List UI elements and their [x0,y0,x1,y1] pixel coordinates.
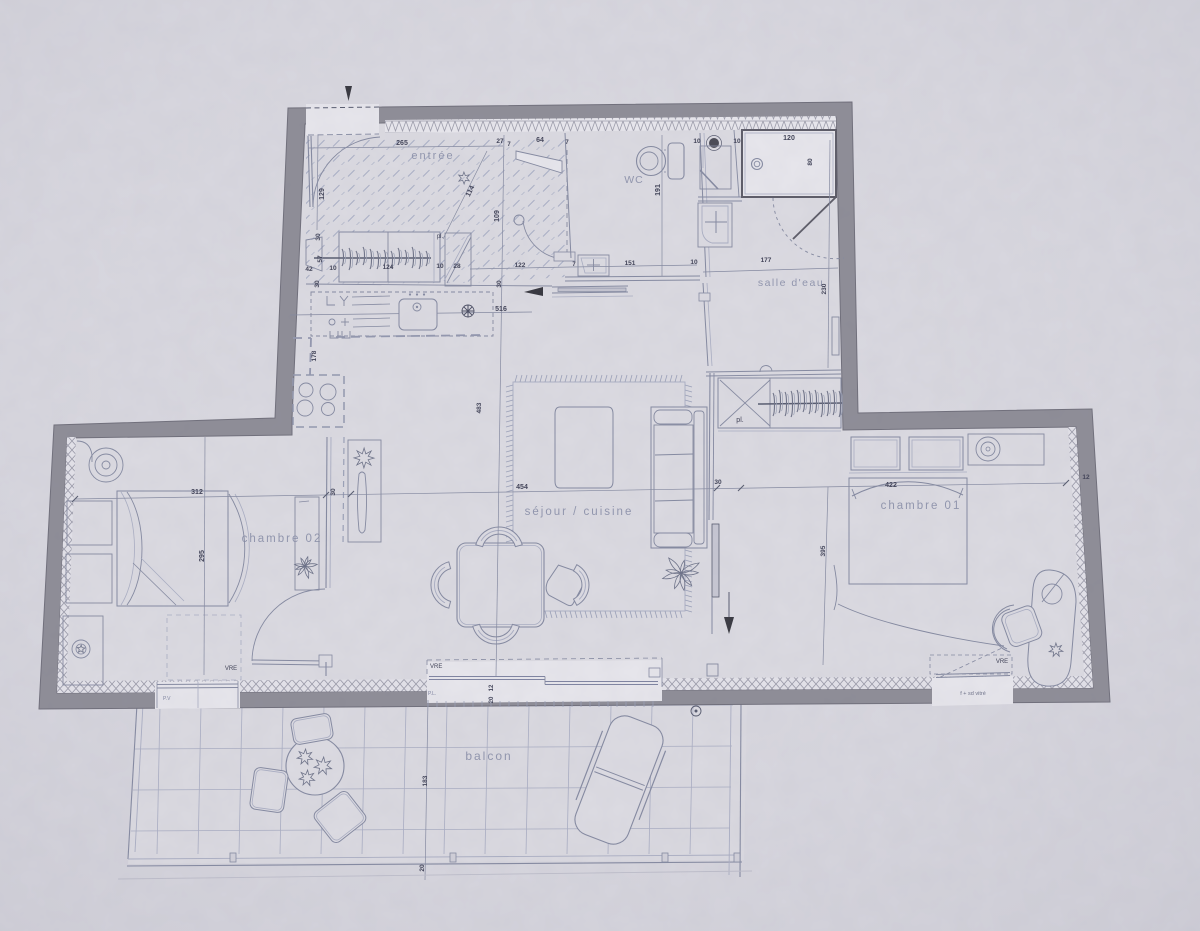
svg-text:124: 124 [383,264,394,271]
svg-text:séjour / cuisine: séjour / cuisine [525,506,634,518]
svg-text:entrée: entrée [411,150,454,162]
svg-text:422: 422 [885,482,897,489]
svg-text:109: 109 [494,210,501,222]
svg-text:VRE: VRE [430,664,442,670]
svg-text:191: 191 [655,184,662,196]
svg-text:30: 30 [714,479,722,486]
svg-text:27: 27 [496,138,504,145]
svg-text:20: 20 [419,864,426,872]
svg-text:28: 28 [453,263,461,270]
svg-text:265: 265 [396,140,408,147]
svg-text:395: 395 [820,545,827,556]
svg-text:f + sd vitré: f + sd vitré [960,691,986,697]
svg-text:30: 30 [330,488,337,496]
svg-text:177: 177 [761,257,772,264]
svg-text:pl.: pl. [736,417,743,424]
svg-text:151: 151 [625,260,636,267]
svg-text:10: 10 [733,138,741,145]
svg-text:12: 12 [1082,474,1090,481]
svg-text:64: 64 [536,137,544,144]
svg-text:VRE: VRE [996,659,1008,665]
svg-text:80: 80 [807,158,814,166]
svg-text:120: 120 [783,135,795,142]
svg-text:chambre 02: chambre 02 [242,533,323,545]
svg-text:30: 30 [315,233,322,241]
svg-text:salle d'eau: salle d'eau [758,277,824,289]
svg-text:178: 178 [311,350,318,361]
svg-text:30: 30 [496,280,503,288]
svg-text:10: 10 [693,138,701,145]
svg-text:chambre 01: chambre 01 [881,500,962,512]
svg-text:WC: WC [624,174,644,186]
svg-text:30: 30 [314,280,321,288]
svg-text:122: 122 [515,262,526,269]
svg-text:454: 454 [516,484,528,491]
svg-text:20: 20 [489,696,495,703]
svg-text:pl.: pl. [437,234,444,240]
svg-text:balcon: balcon [465,749,512,763]
svg-text:129: 129 [319,188,326,200]
svg-text:516: 516 [495,306,507,313]
svg-text:P.L.: P.L. [428,691,436,697]
svg-text:295: 295 [199,550,206,562]
svg-text:10: 10 [690,259,698,266]
svg-text:P.V: P.V [163,696,171,702]
svg-text:230: 230 [821,283,828,294]
svg-text:183: 183 [422,775,429,786]
svg-text:12: 12 [489,684,495,691]
svg-text:57: 57 [317,255,324,263]
svg-text:10: 10 [436,263,444,270]
svg-text:10: 10 [329,265,337,272]
svg-text:312: 312 [191,489,203,496]
svg-text:VRE: VRE [225,666,237,672]
svg-text:42: 42 [305,266,313,273]
svg-text:483: 483 [476,402,483,413]
